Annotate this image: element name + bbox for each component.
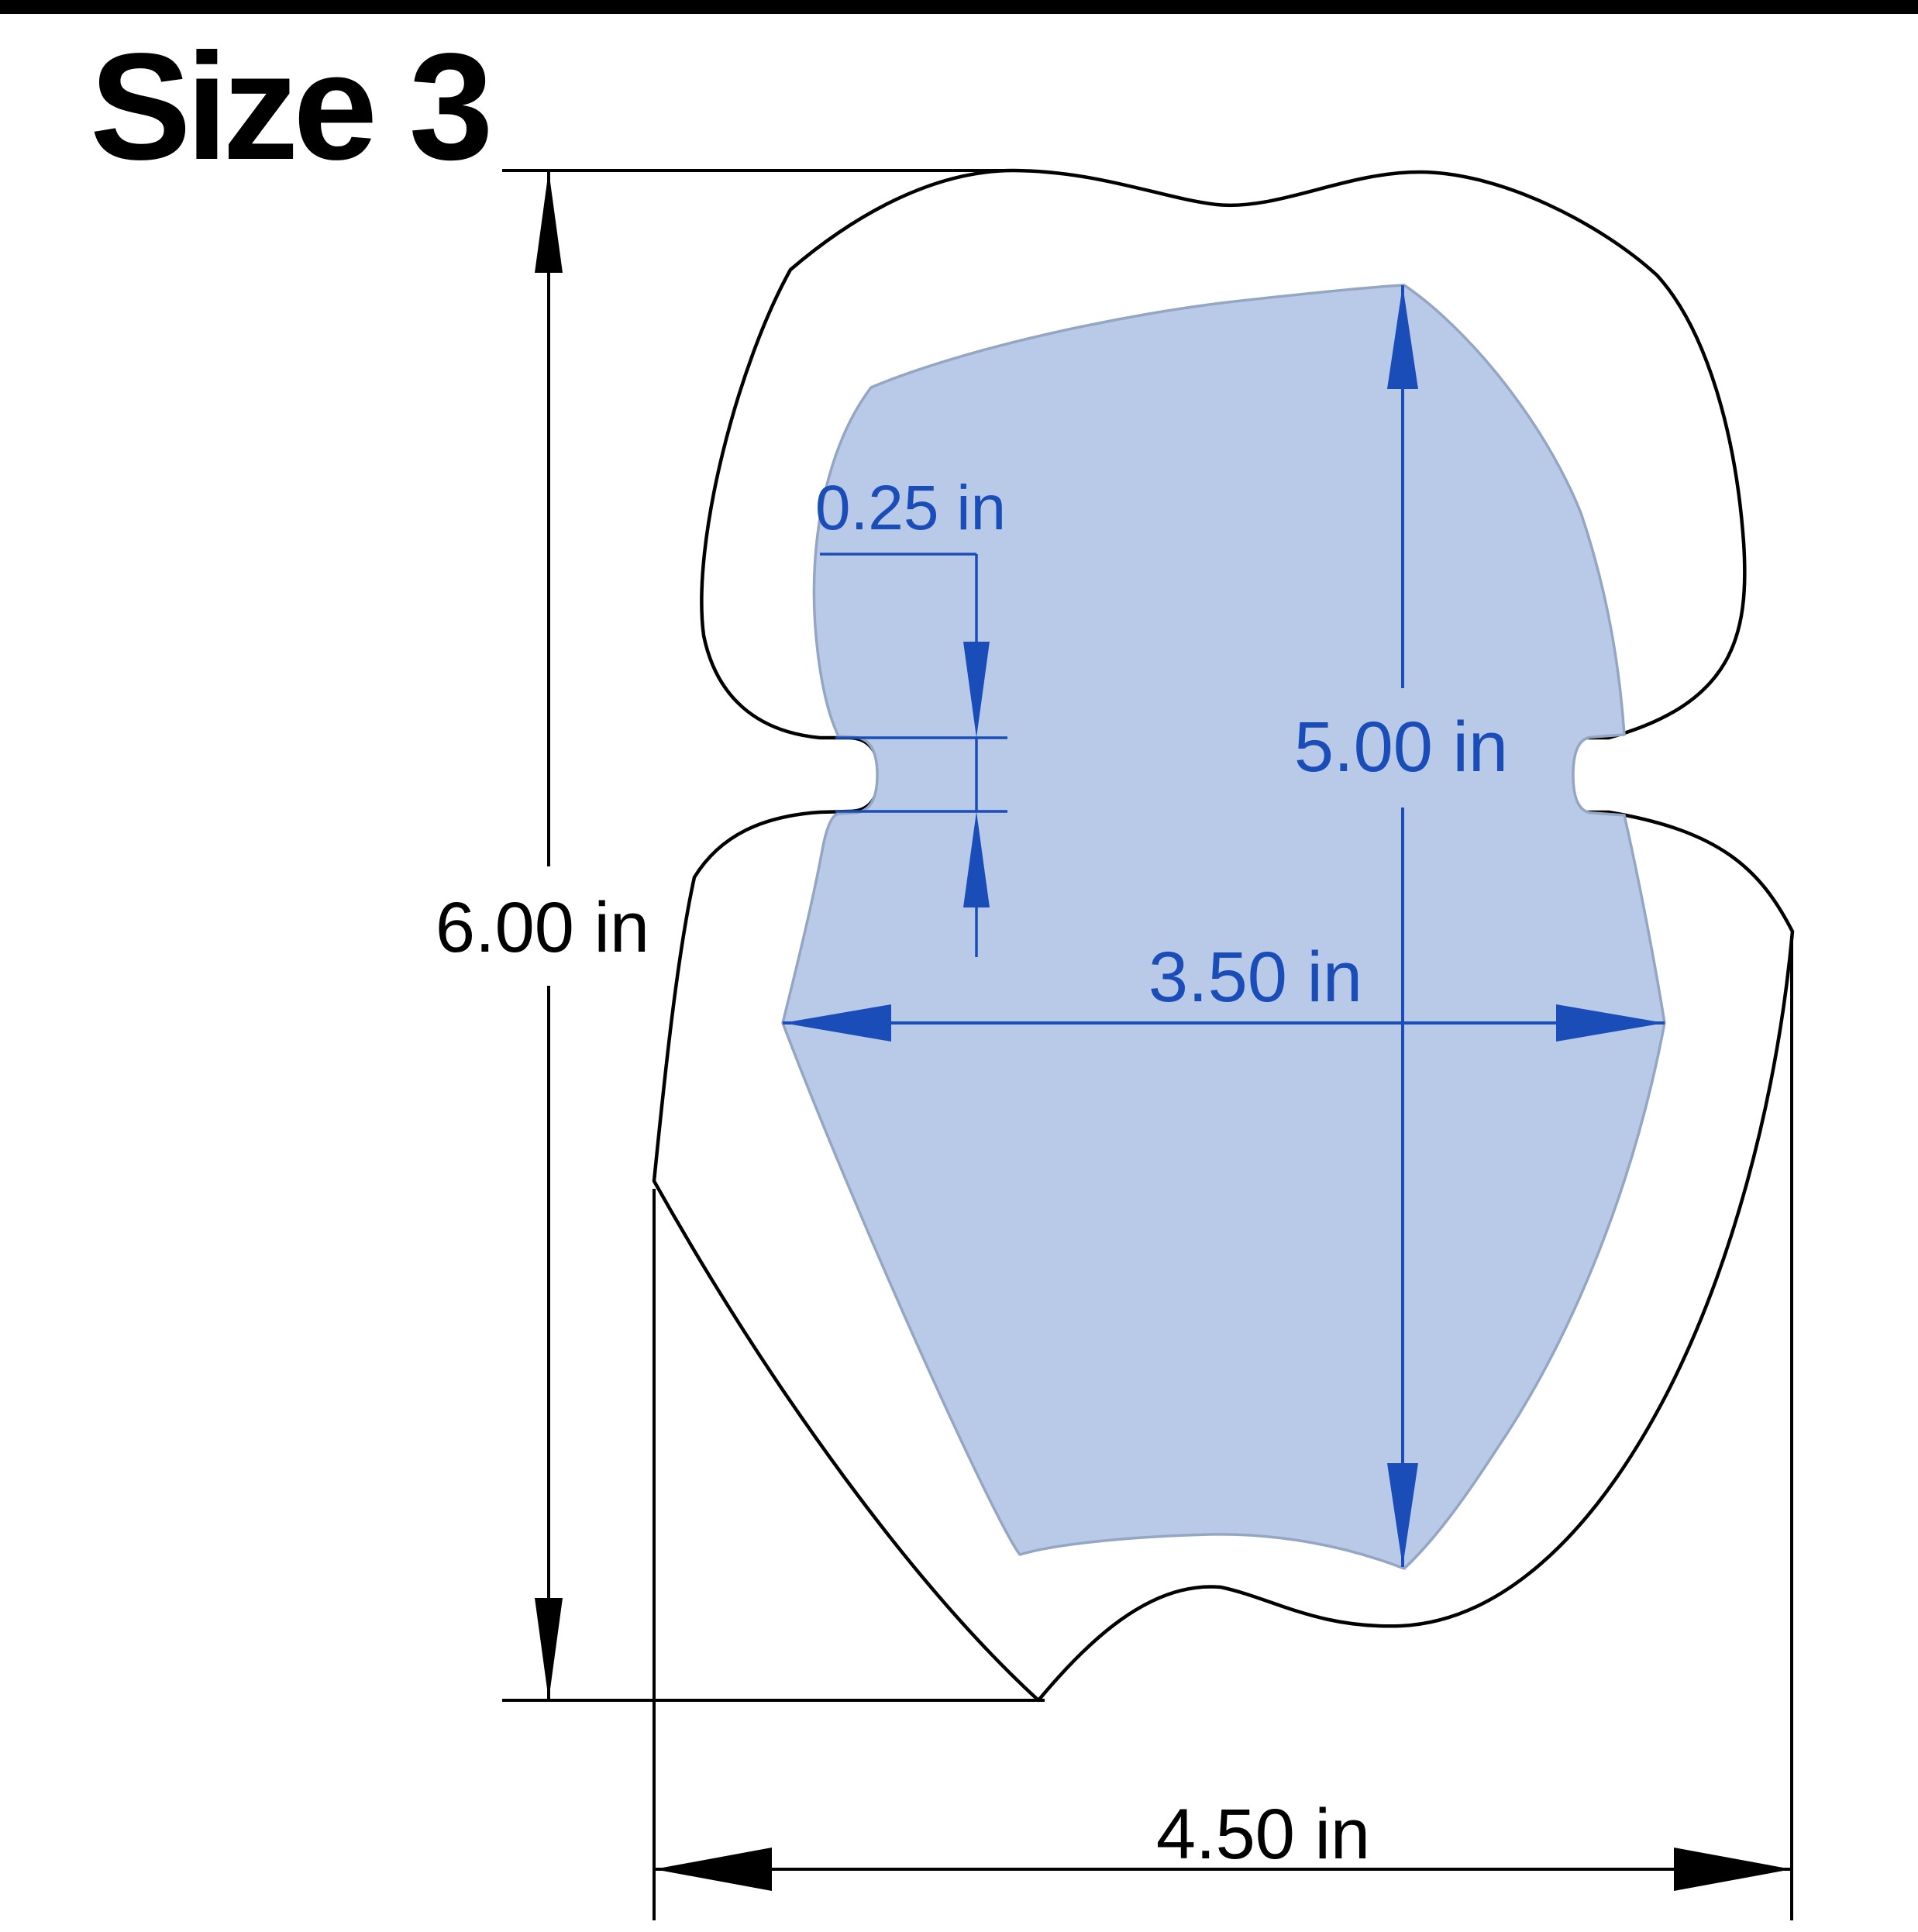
shell-height-arrow-up-icon	[535, 170, 563, 273]
dimension-drawing-page: { "header": { "title": "Size 3" }, "colo…	[0, 0, 1918, 1932]
shell-width-label: 4.50 in	[1156, 1795, 1370, 1874]
technical-drawing: 6.00 in 4.50 in 5.00 in 3.50 in 0.25 in	[0, 0, 1918, 1932]
shell-height-label: 6.00 in	[436, 888, 649, 967]
pad-width-label: 3.50 in	[1148, 938, 1362, 1017]
shell-height-arrow-down-icon	[535, 1598, 563, 1700]
shell-width-arrow-left-icon	[654, 1848, 772, 1891]
notch-depth-label: 0.25 in	[815, 473, 1006, 543]
pad-height-label: 5.00 in	[1294, 708, 1508, 787]
shell-width-arrow-right-icon	[1674, 1848, 1792, 1891]
